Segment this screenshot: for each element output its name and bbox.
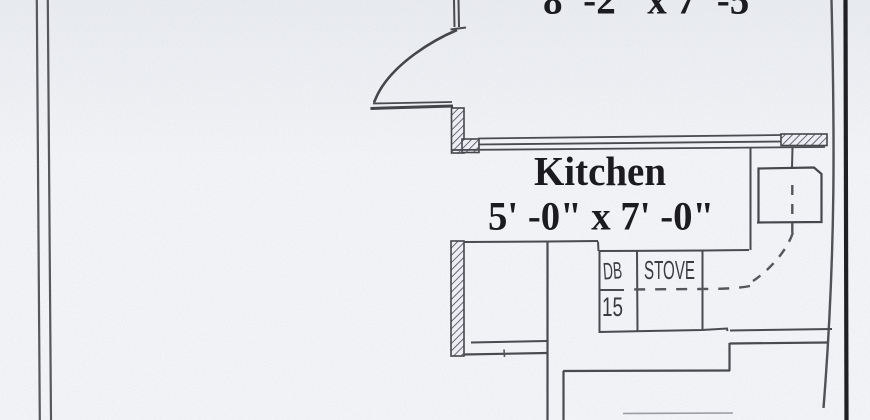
- svg-text:Kitchen: Kitchen: [534, 148, 666, 194]
- svg-text:5' -0" x 7' -0": 5' -0" x 7' -0": [488, 194, 714, 239]
- svg-text:DB: DB: [602, 257, 623, 285]
- svg-text:15: 15: [602, 292, 623, 322]
- svg-text:STOVE: STOVE: [644, 255, 695, 285]
- svg-text:8' -2" x 7' -5": 8' -2" x 7' -5": [543, 0, 771, 23]
